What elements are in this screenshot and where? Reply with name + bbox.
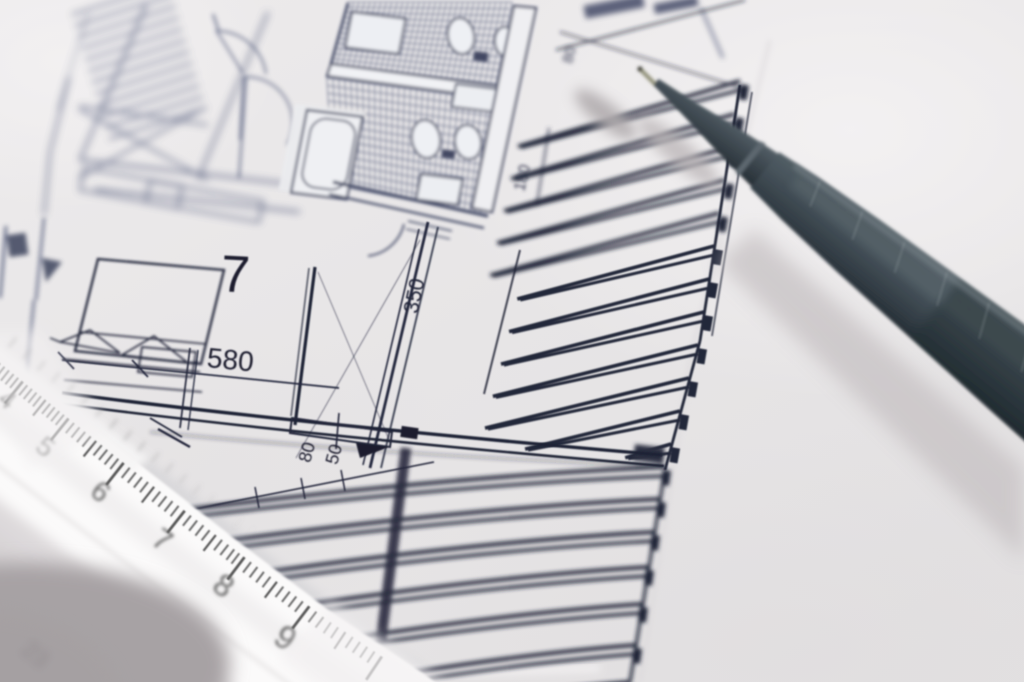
svg-text:7: 7 (219, 245, 251, 304)
svg-text:580: 580 (206, 342, 255, 377)
